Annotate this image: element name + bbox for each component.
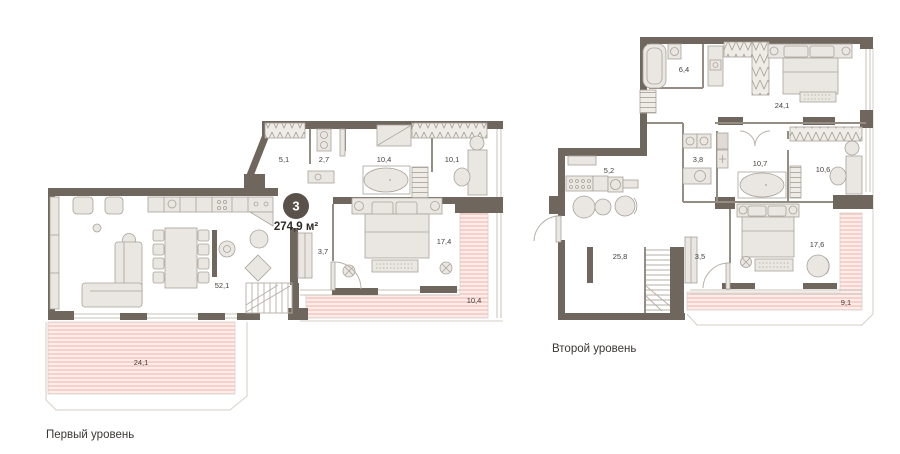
bathroom-38-furniture xyxy=(683,133,728,184)
room-area-label: 52,1 xyxy=(215,281,230,290)
room-area-label: 17,6 xyxy=(810,240,825,249)
room-area-label: 2,7 xyxy=(319,155,329,164)
corridor-wardrobe xyxy=(298,233,312,278)
total-area-label: 274,9 м² xyxy=(274,221,318,233)
room-area-label: 17,4 xyxy=(437,237,452,246)
terrace-area-label: 9,1 xyxy=(841,298,851,307)
room-area-label: 3,7 xyxy=(318,247,328,256)
terrace-area-label: 24,1 xyxy=(134,358,149,367)
second-level-plan: 6,4 24,1 5,2 3,8 10,7 10,6 25,8 3,5 17,6… xyxy=(534,37,873,325)
room-area-label: 3,5 xyxy=(695,252,705,261)
first-level-caption: Первый уровень xyxy=(46,429,134,441)
ceiling-fan-icon xyxy=(440,262,452,274)
room-area-label: 10,7 xyxy=(753,159,768,168)
first-level-terraces xyxy=(46,213,503,410)
shower-icon xyxy=(377,125,411,146)
room-area-label: 10,4 xyxy=(377,155,392,164)
room-area-label: 5,2 xyxy=(604,166,614,175)
bedroom-241-furniture xyxy=(724,42,852,102)
kitchen-counter xyxy=(148,197,273,226)
terrace-area-label: 10,4 xyxy=(467,296,482,305)
bathtub-icon xyxy=(363,166,410,194)
stairs-first-level xyxy=(246,283,292,313)
room-area-label: 24,1 xyxy=(775,101,790,110)
room-area-label: 25,8 xyxy=(613,252,628,261)
stairs-second-level xyxy=(646,250,670,311)
kitchen-52-furniture xyxy=(566,156,638,218)
room-106-furniture xyxy=(790,127,862,198)
tv-unit xyxy=(587,247,593,283)
room-area-label: 10,6 xyxy=(816,165,831,174)
tv-unit xyxy=(212,230,217,277)
ceiling-fan-icon xyxy=(741,257,752,268)
room-area-label: 3,8 xyxy=(693,155,703,164)
room-area-label: 10,1 xyxy=(445,155,460,164)
floorplan-canvas: 5,1 2,7 10,4 10,1 3,7 52,1 17,4 10,4 24,… xyxy=(0,0,900,454)
first-level-plan: 5,1 2,7 10,4 10,1 3,7 52,1 17,4 10,4 24,… xyxy=(46,121,503,410)
living-room-furniture xyxy=(50,197,271,309)
badge-number: 3 xyxy=(292,199,299,214)
room-area-label: 6,4 xyxy=(679,65,689,74)
floorplan-svg: 5,1 2,7 10,4 10,1 3,7 52,1 17,4 10,4 24,… xyxy=(0,0,900,454)
bathroom-64-furniture xyxy=(640,44,723,113)
apartment-badge: 3 274,9 м² xyxy=(274,193,318,233)
room-area-label: 5,1 xyxy=(279,155,289,164)
second-level-caption: Второй уровень xyxy=(552,343,636,355)
bedroom-furniture xyxy=(331,198,452,290)
